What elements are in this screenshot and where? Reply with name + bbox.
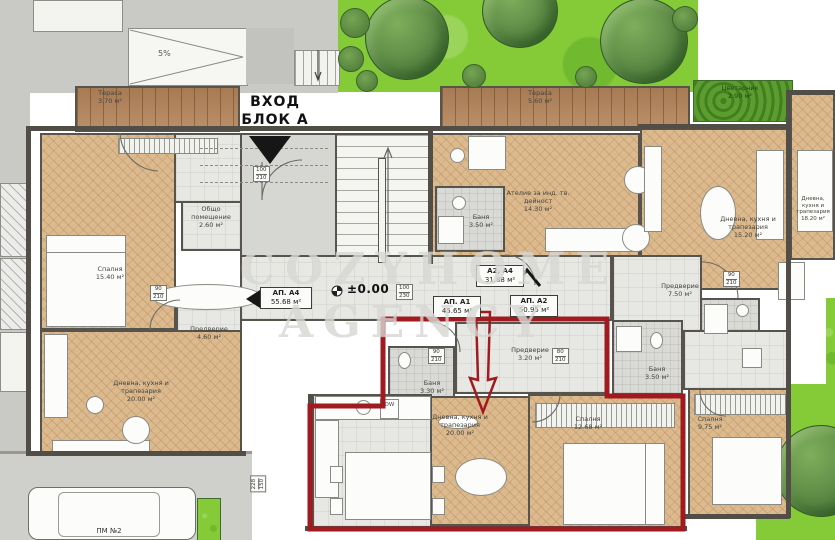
entrance-arrow-icon bbox=[249, 136, 291, 164]
wall-top-left-wing bbox=[26, 126, 242, 131]
bush-2 bbox=[338, 46, 364, 72]
label-bath-red: Баня3.30 м² bbox=[412, 380, 452, 396]
hall-right-apartment bbox=[683, 330, 788, 390]
entrance-platform bbox=[246, 28, 294, 84]
sink-bath-atelier bbox=[452, 196, 466, 210]
apartment-tag-a4: АП. А455.68 м² bbox=[260, 287, 312, 309]
label-living-red: Дневна, кухня и трапезария20.00 м² bbox=[418, 414, 502, 437]
label-vestibule-left: Предверие4.60 м² bbox=[178, 326, 240, 342]
wall-top-edge-room bbox=[788, 90, 835, 95]
door-dim-red-bedroom: 80210 bbox=[552, 348, 569, 364]
bush-4 bbox=[462, 64, 486, 88]
garden-right-strip bbox=[826, 298, 835, 384]
bush-5 bbox=[575, 66, 597, 88]
wall-bottom-left-wing bbox=[26, 451, 246, 456]
dining-table-red bbox=[345, 452, 431, 520]
entrance-label: ВХОД БЛОК А bbox=[225, 94, 325, 129]
label-living-right: Дневна, кухня и трапезария15.20 м² bbox=[706, 216, 790, 239]
entrance-steps bbox=[294, 50, 340, 86]
wardrobe-right-bedroom bbox=[694, 394, 786, 415]
kitchen-counter-left bbox=[44, 334, 68, 418]
dining-table-hall bbox=[152, 284, 262, 310]
label-bedroom-right: Спалня9.75 м² bbox=[684, 416, 736, 432]
label-common-room: Общо помещение2.60 м² bbox=[182, 206, 240, 229]
entrance-ramp bbox=[128, 28, 248, 86]
toilet-bath-red bbox=[398, 352, 411, 369]
chair-atelier bbox=[450, 148, 465, 163]
kitchen-sink-red bbox=[356, 400, 371, 415]
door-dim-corridor: 100230 bbox=[396, 284, 413, 300]
label-living-left: Дневна, кухня и трапезария20.00 м² bbox=[96, 380, 186, 403]
door-dim-bath-red: 90210 bbox=[428, 348, 445, 364]
floor-plan: 5% Цветарник 2.90 м² ПМ №2 bbox=[0, 0, 835, 540]
label-bedroom-left: Спалня15.40 м² bbox=[72, 266, 148, 282]
kitchen-counter-red-side bbox=[315, 420, 339, 498]
door-dim-entrance: 100210 bbox=[253, 166, 270, 182]
label-bath-atelier: Баня3.50 м² bbox=[460, 214, 502, 230]
wall-stair-right bbox=[428, 126, 433, 264]
door-dim-right-vestibule: 90210 bbox=[723, 271, 740, 287]
bush-6 bbox=[672, 6, 698, 32]
wardrobe-left bbox=[118, 138, 218, 154]
wall-right-inner bbox=[786, 90, 791, 390]
tree-1 bbox=[365, 0, 449, 80]
sink-bath-right bbox=[736, 304, 749, 317]
apartment-tag-a2: АП. А250.95 м² bbox=[510, 295, 558, 317]
washing-machine bbox=[742, 348, 762, 368]
toilet-bath-a2 bbox=[650, 332, 663, 349]
coffee-table-left bbox=[122, 416, 150, 444]
desk-atelier bbox=[468, 136, 506, 170]
wall-right-lower bbox=[786, 388, 791, 518]
label-vestibule-right: Предверие7.50 м² bbox=[648, 283, 712, 299]
door-dim-bedroom-left: 90210 bbox=[150, 285, 167, 301]
label-edge-room: Дневна, кухня и трапезария18.20 м² bbox=[793, 196, 833, 222]
bed-red-headboard bbox=[645, 443, 665, 525]
stair-stringer bbox=[378, 158, 386, 263]
label-atelier: Ателие за инд. тв. дейност14.30 м² bbox=[498, 190, 578, 213]
chair-red-4 bbox=[432, 498, 445, 515]
sofa-right-living bbox=[644, 146, 662, 232]
bed-right-bedroom bbox=[712, 437, 782, 505]
wall-kitchen-left bbox=[308, 394, 313, 528]
chair-red-3 bbox=[432, 466, 445, 483]
shower-bath-a2 bbox=[616, 326, 642, 352]
tub-bath-right bbox=[704, 304, 728, 334]
wall-bottom-red bbox=[305, 526, 687, 531]
bush-1 bbox=[340, 8, 370, 38]
apartment-tag-a1: АП. А145.65 м² bbox=[433, 296, 481, 318]
chair-red-1 bbox=[330, 466, 343, 483]
label-terrace-center: Тераса5.60 м² bbox=[508, 90, 572, 106]
label-terrace-left: Тераса3.70 м² bbox=[80, 90, 140, 106]
label-bedroom-red: Спалня12.68 м² bbox=[558, 416, 618, 432]
wall-bottom-right bbox=[683, 514, 790, 519]
label-planter: Цветарник 2.90 м² bbox=[700, 85, 780, 101]
oval-table-red-living bbox=[455, 458, 507, 496]
level-marker: ±0.00 bbox=[347, 282, 389, 296]
ramp-slope-label: 5% bbox=[158, 49, 171, 58]
kitchen-counter-red bbox=[315, 396, 431, 420]
roof-block bbox=[33, 0, 123, 32]
wall-left bbox=[26, 126, 31, 456]
desk-right bbox=[778, 262, 805, 300]
apartment-tag-common: А2, А431.88 м² bbox=[476, 265, 524, 287]
planter-parking bbox=[197, 498, 221, 540]
label-bath-a2: Баня3.50 м² bbox=[636, 366, 678, 382]
parking-dim: 228150 bbox=[250, 476, 266, 493]
chair-red-2 bbox=[330, 498, 343, 515]
dishwasher: DW bbox=[380, 399, 399, 419]
wall-top-right-wing bbox=[638, 124, 790, 129]
bed-left-pillows bbox=[46, 235, 126, 253]
label-parking-spot: ПМ №2 bbox=[84, 527, 134, 535]
bush-3 bbox=[356, 70, 378, 92]
